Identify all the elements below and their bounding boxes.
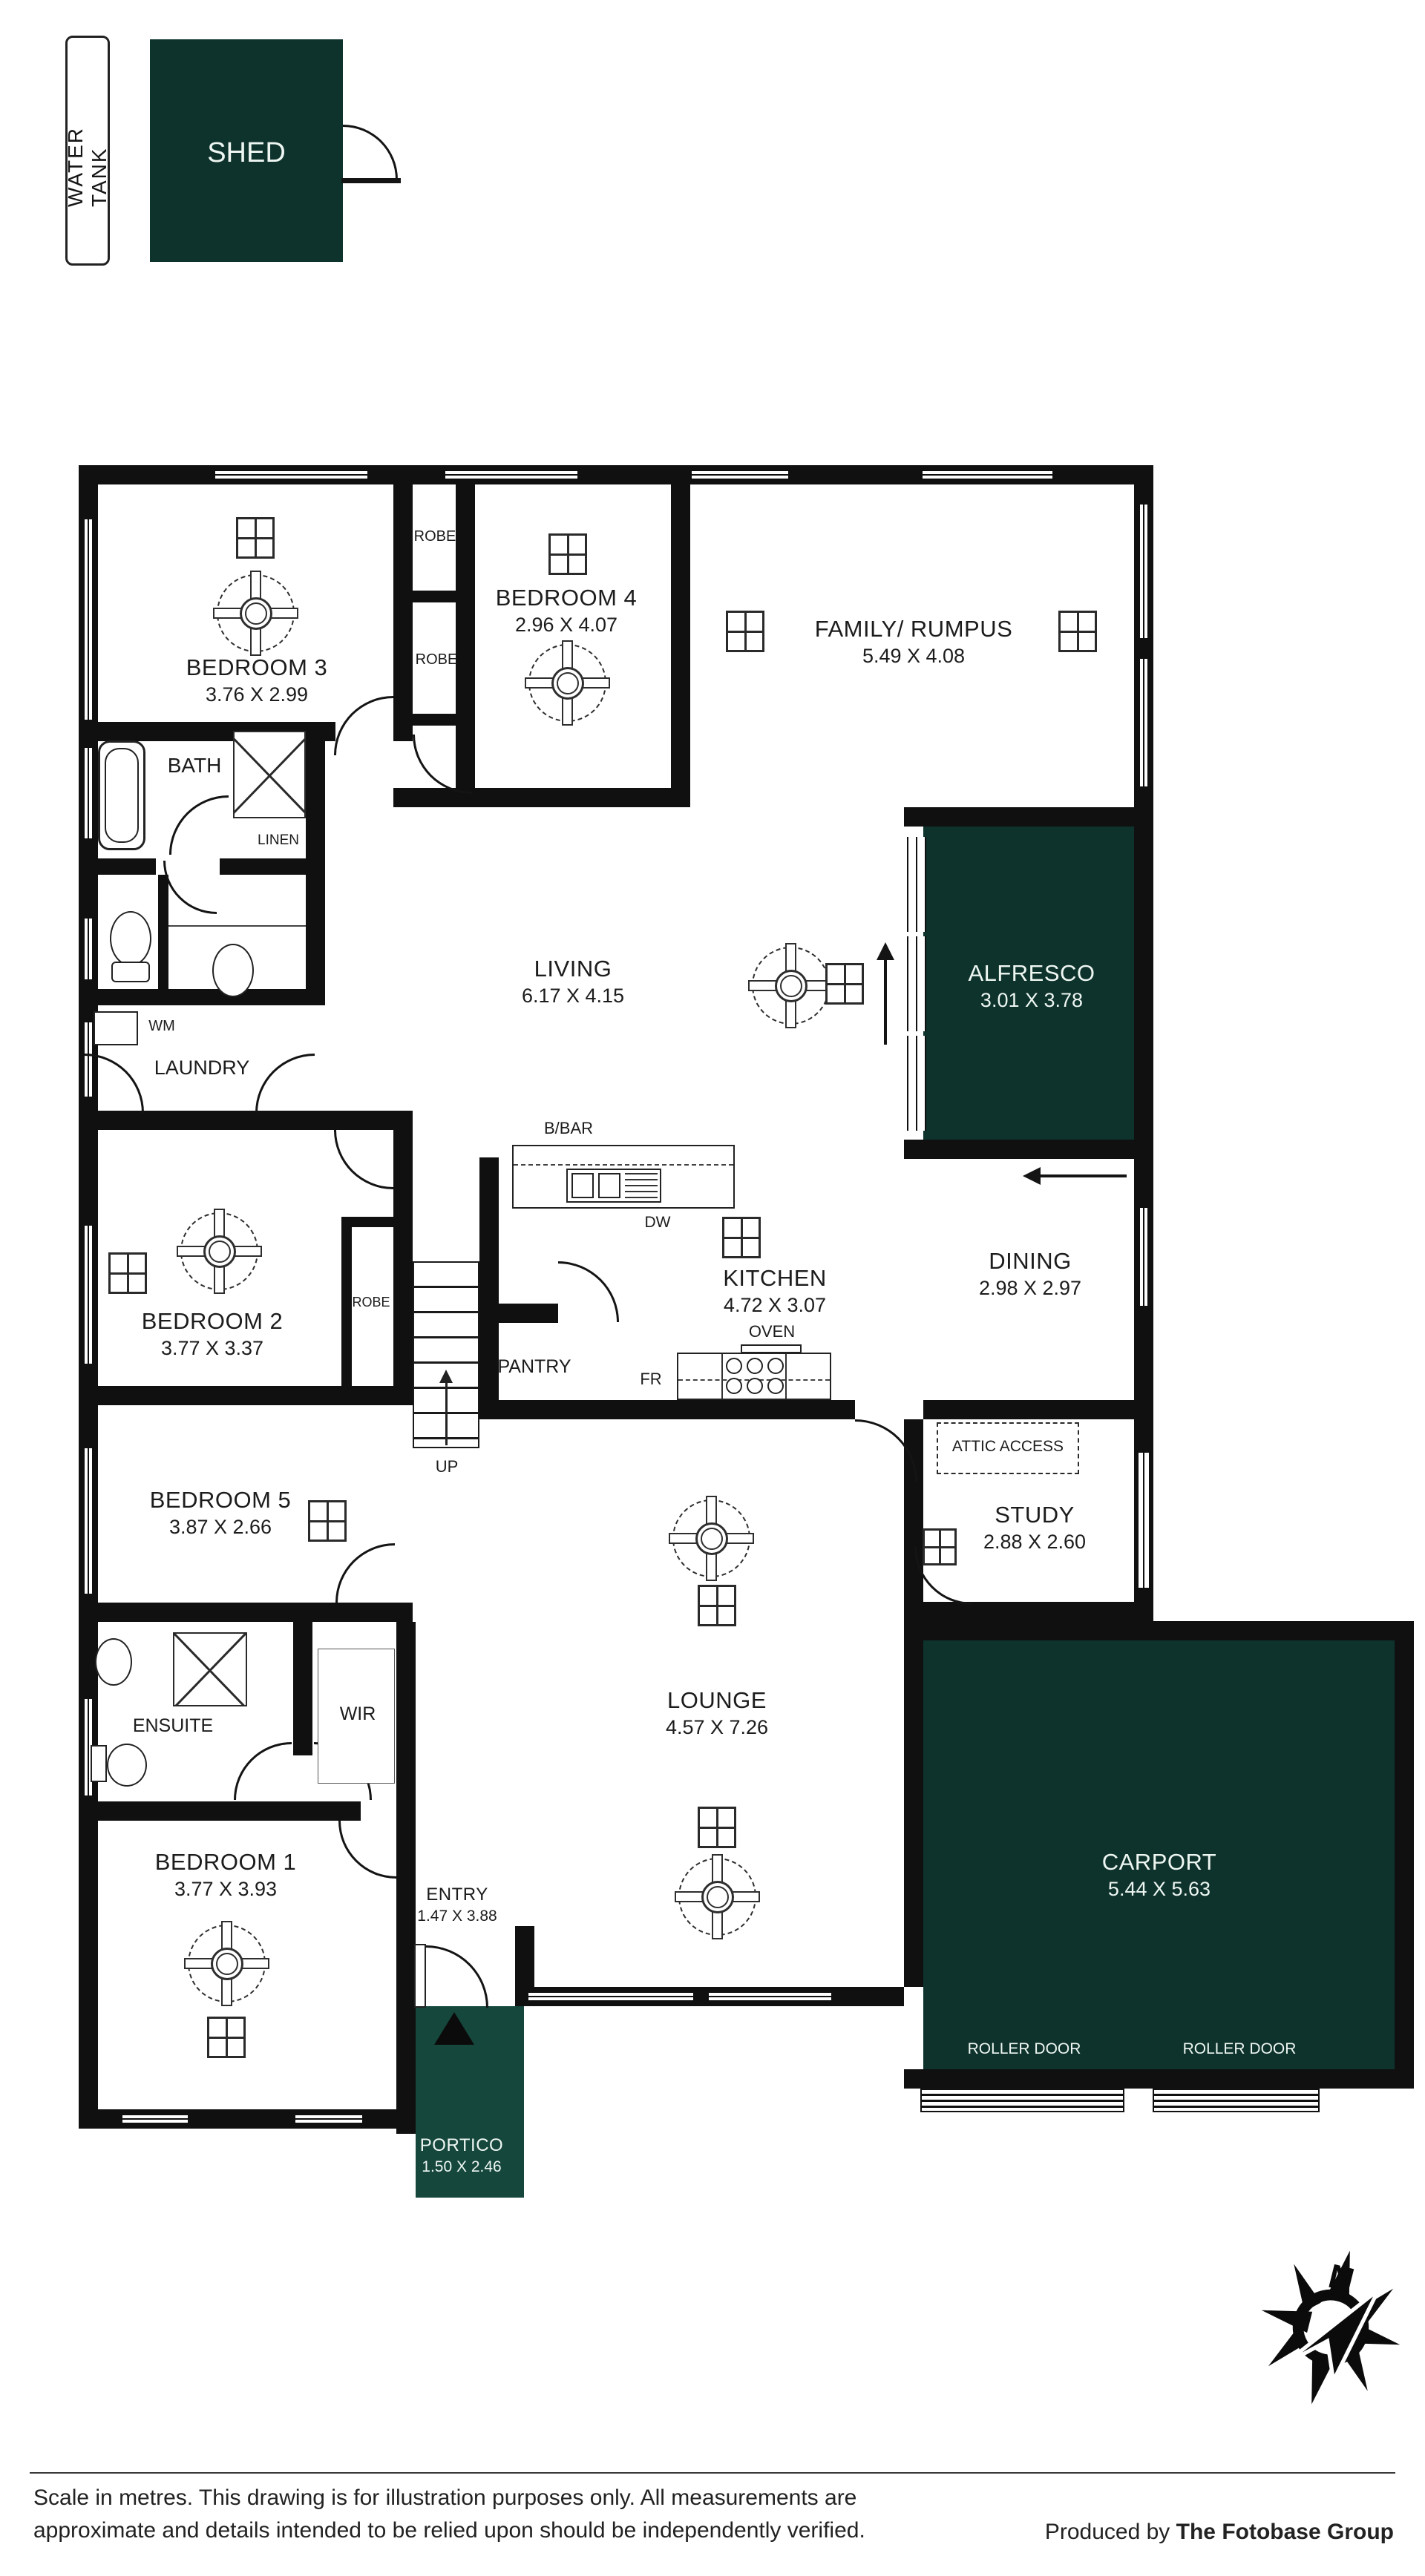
wall-kitchen-bottom — [479, 1400, 855, 1419]
window-top-family1 — [692, 470, 788, 480]
window-symbol-kitchen — [722, 1217, 761, 1258]
roller-door-2 — [1153, 2089, 1320, 2112]
label-linen: LINEN — [258, 832, 299, 849]
room-label-family: FAMILY/ RUMPUS5.49 X 4.08 — [815, 616, 1013, 668]
label-roller-door-1: ROLLER DOOR — [968, 2040, 1081, 2058]
shower-bath — [233, 731, 306, 818]
window-lounge-bottom1 — [528, 1991, 693, 2002]
wall-study-top — [923, 1400, 1153, 1419]
window-right-family2 — [1139, 659, 1149, 786]
window-bed1-bottom1 — [122, 2114, 188, 2124]
room-label-bedroom4: BEDROOM 42.96 X 4.07 — [496, 585, 638, 637]
window-symbol-lounge-1 — [698, 1585, 736, 1626]
ceiling-fan-living — [752, 947, 830, 1025]
wall-bed2robe-left — [341, 1217, 352, 1386]
bath-door-arc — [169, 795, 229, 855]
alfresco-exit-arrow-line — [1039, 1174, 1127, 1177]
basin-powder — [212, 944, 254, 997]
label-up: UP — [436, 1457, 459, 1476]
label-pantry: PANTRY — [497, 1356, 571, 1378]
shower-ensuite — [173, 1632, 247, 1706]
wall-bed4-bottom — [393, 788, 690, 807]
label-dw: DW — [645, 1214, 671, 1232]
shed: SHED — [150, 39, 343, 262]
stairs-up-arrow-head — [439, 1370, 453, 1383]
disclaimer-line-2: approximate and details intended to be r… — [33, 2518, 865, 2543]
bed5-door-arc — [335, 1543, 395, 1603]
wall-carport-right — [1395, 1640, 1414, 2089]
label-roller-door-2: ROLLER DOOR — [1183, 2040, 1297, 2058]
label-robe-2: ROBE — [416, 651, 458, 668]
wall-stairs-right — [479, 1157, 499, 1419]
water-tank: WATER TANK — [65, 36, 110, 266]
entry-door-arc — [426, 1945, 488, 2008]
basin-ensuite — [95, 1638, 132, 1686]
wall-carport-top — [904, 1621, 1414, 1640]
label-attic-access: ATTIC ACCESS — [952, 1438, 1064, 1456]
ensuite-door-arc — [234, 1742, 292, 1800]
label-laundry: LAUNDRY — [154, 1057, 250, 1080]
compass-north-icon: N — [1253, 2242, 1409, 2413]
window-left-bed2 — [83, 1226, 94, 1364]
wall-laundry-bottom — [79, 1111, 393, 1130]
wall-bed1-top — [79, 1801, 361, 1821]
bed2-door-arc — [334, 1130, 393, 1189]
credit-produced-by: Produced by — [1045, 2520, 1170, 2544]
pantry-door-arc — [558, 1261, 619, 1322]
window-symbol-family-right — [1058, 611, 1097, 652]
water-tank-label: WATER TANK — [64, 94, 111, 207]
living-exit-arrow-head — [877, 942, 894, 960]
room-label-bedroom3: BEDROOM 33.76 X 2.99 — [186, 654, 328, 706]
wall-bath-bottom-b — [220, 858, 325, 875]
wall-wc-bottom — [79, 989, 325, 1005]
toilet-ensuite-bowl — [107, 1744, 147, 1787]
bathtub — [98, 740, 145, 850]
window-left-bed3 — [83, 519, 94, 720]
disclaimer-line-1: Scale in metres. This drawing is for ill… — [33, 2485, 856, 2511]
room-label-dining: DINING2.98 X 2.97 — [979, 1248, 1081, 1300]
toilet-wc-tank — [111, 962, 150, 982]
ceiling-fan-bed1 — [188, 1925, 266, 2002]
portico-entry-arrow — [434, 2012, 474, 2045]
window-left-bath — [83, 748, 94, 838]
label-fr: FR — [640, 1370, 661, 1389]
shed-label: SHED — [207, 137, 286, 169]
living-exit-arrow-line — [884, 959, 887, 1045]
label-bath: BATH — [168, 754, 222, 778]
wall-pantry-top — [499, 1304, 558, 1323]
label-robe-3: ROBE — [352, 1295, 390, 1310]
bed4-door-arc — [413, 735, 472, 794]
shed-door-arc — [343, 125, 398, 180]
label-robe-1: ROBE — [414, 528, 456, 545]
label-ensuite: ENSUITE — [133, 1715, 213, 1737]
window-symbol-family-left — [726, 611, 764, 652]
alfresco-slider-1 — [907, 837, 926, 932]
wc-door-arc — [163, 861, 217, 914]
room-label-portico: PORTICO1.50 X 2.46 — [420, 2135, 503, 2176]
shed-door-leaf — [341, 178, 401, 183]
bed3-door-arc — [334, 696, 393, 755]
room-label-alfresco: ALFRESCO3.01 X 3.78 — [968, 960, 1095, 1012]
room-label-bedroom1: BEDROOM 13.77 X 3.93 — [155, 1849, 297, 1901]
room-label-bedroom5: BEDROOM 53.87 X 2.66 — [150, 1487, 292, 1539]
wall-robe2-bottom — [413, 714, 456, 726]
ceiling-fan-bed4 — [528, 644, 606, 722]
wall-bed1-right — [396, 1622, 416, 2134]
laundry-door-arc-2 — [255, 1054, 315, 1113]
window-symbol-bed4 — [548, 533, 587, 575]
window-top-bed3 — [215, 470, 367, 480]
compass-n-label: N — [1325, 2256, 1358, 2299]
oven-hood — [741, 1344, 802, 1353]
room-label-kitchen: KITCHEN4.72 X 3.07 — [723, 1265, 827, 1317]
alfresco-exit-arrow-head — [1023, 1167, 1041, 1185]
toilet-ensuite-tank — [91, 1745, 107, 1782]
stairs-up-arrow-line — [445, 1381, 448, 1445]
label-wir: WIR — [340, 1703, 376, 1725]
burner — [767, 1358, 784, 1374]
wall-study-bottom — [904, 1602, 1153, 1621]
label-bbar: B/BAR — [544, 1119, 593, 1138]
wall-robe-divider — [413, 591, 456, 602]
wall-bath-bottom-a — [79, 858, 156, 875]
window-right-study — [1137, 1453, 1150, 1588]
entry-door-leaf — [414, 1944, 426, 2008]
window-left-bed5 — [83, 1448, 94, 1594]
wall-alfresco-bottom — [904, 1140, 1153, 1159]
window-right-family1 — [1139, 505, 1149, 638]
washing-machine — [94, 1011, 138, 1045]
window-top-family2 — [923, 470, 1052, 480]
window-top-bed4 — [445, 470, 577, 480]
ceiling-fan-lounge-2 — [678, 1858, 756, 1936]
wall-bed2robe-top — [341, 1217, 413, 1227]
room-label-study: STUDY2.88 X 2.60 — [983, 1502, 1086, 1554]
sink-bowl-1 — [571, 1173, 594, 1198]
window-symbol-bed2 — [108, 1252, 147, 1294]
wall-bed4-right — [671, 465, 690, 807]
room-label-bedroom2: BEDROOM 23.77 X 3.37 — [142, 1308, 284, 1360]
wall-alfresco-right — [1134, 827, 1153, 1159]
wall-carport-bottom — [904, 2069, 1414, 2089]
burner — [726, 1358, 742, 1374]
wall-ensuite-divider — [293, 1622, 312, 1755]
room-label-carport: CARPORT5.44 X 5.63 — [1102, 1849, 1217, 1901]
window-left-wc — [83, 919, 94, 979]
sink-bowl-2 — [598, 1173, 620, 1198]
wall-bed2-right — [393, 1111, 413, 1405]
alfresco-slider-3 — [907, 1036, 926, 1131]
window-symbol-bed5 — [308, 1500, 347, 1542]
wall-lounge-right — [904, 1640, 923, 1987]
burner — [726, 1378, 742, 1394]
window-symbol-bed1 — [207, 2017, 246, 2058]
floor-plan: WATER TANK SHED — [0, 0, 1425, 2576]
toilet-wc-bowl — [110, 911, 151, 966]
wall-wc-divider — [158, 875, 168, 989]
burner — [747, 1358, 763, 1374]
wall-bed2-bottom — [79, 1386, 413, 1405]
room-label-lounge: LOUNGE4.57 X 7.26 — [666, 1687, 768, 1739]
window-symbol-study — [923, 1528, 957, 1565]
window-bed1-bottom2 — [295, 2114, 362, 2124]
credit-company: The Fotobase Group — [1176, 2520, 1394, 2544]
bed1-door-arc — [338, 1821, 396, 1879]
room-label-entry: ENTRY1.47 X 3.88 — [417, 1885, 497, 1925]
window-right-dining — [1139, 1208, 1149, 1306]
wall-bed3-right — [393, 465, 413, 741]
laundry-door-arc-1 — [85, 1054, 144, 1113]
window-symbol-living — [825, 963, 864, 1005]
wall-alfresco-top — [904, 807, 1153, 827]
window-symbol-bed3 — [236, 517, 275, 559]
ceiling-fan-bed2 — [180, 1212, 258, 1290]
room-label-living: LIVING6.17 X 4.15 — [522, 956, 624, 1008]
window-symbol-lounge-2 — [698, 1807, 736, 1848]
label-wm: WM — [148, 1018, 175, 1035]
ceiling-fan-lounge-1 — [672, 1499, 750, 1577]
roller-door-1 — [920, 2089, 1124, 2112]
label-oven: OVEN — [749, 1322, 795, 1341]
ceiling-fan-bed3 — [217, 574, 295, 652]
footer-divider — [30, 2472, 1395, 2474]
vanity-counter-line — [168, 925, 306, 927]
alfresco-slider-2 — [907, 936, 926, 1031]
credit-line: Produced by The Fotobase Group — [1045, 2520, 1394, 2545]
sink-drainer — [625, 1173, 658, 1198]
window-lounge-bottom2 — [709, 1991, 831, 2002]
burner — [747, 1378, 763, 1394]
burner — [767, 1378, 784, 1394]
wall-bed5-bottom — [79, 1603, 413, 1622]
